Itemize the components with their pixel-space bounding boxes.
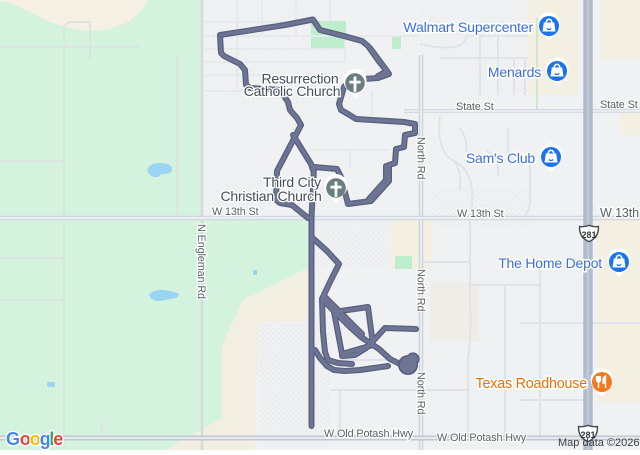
svg-text:N Engleman Rd: N Engleman Rd (195, 224, 207, 299)
svg-text:Christian Church: Christian Church (220, 188, 321, 204)
svg-text:W Old Potash Hwy: W Old Potash Hwy (324, 428, 414, 440)
svg-text:State St: State St (456, 101, 494, 113)
svg-text:e: e (53, 429, 63, 449)
svg-text:W 13th St: W 13th St (600, 206, 640, 220)
svg-text:Sam's Club: Sam's Club (466, 150, 536, 166)
svg-text:Walmart Supercenter: Walmart Supercenter (403, 20, 533, 36)
svg-text:Map data ©2026: Map data ©2026 (558, 437, 640, 449)
svg-text:North Rd: North Rd (415, 372, 427, 414)
svg-text:W 13th St: W 13th St (457, 208, 504, 220)
svg-text:281: 281 (581, 230, 596, 240)
svg-text:W Old Potash Hwy: W Old Potash Hwy (437, 432, 527, 444)
svg-text:State St: State St (600, 99, 638, 111)
svg-text:W 13th St: W 13th St (212, 206, 259, 218)
svg-text:Menards: Menards (488, 64, 541, 80)
svg-text:Catholic Church: Catholic Church (244, 83, 341, 99)
svg-text:North Rd: North Rd (415, 269, 427, 311)
svg-text:North Rd: North Rd (415, 137, 427, 179)
svg-text:The Home Depot: The Home Depot (498, 255, 602, 271)
svg-text:G: G (6, 429, 20, 449)
svg-text:Texas Roadhouse: Texas Roadhouse (476, 376, 588, 392)
